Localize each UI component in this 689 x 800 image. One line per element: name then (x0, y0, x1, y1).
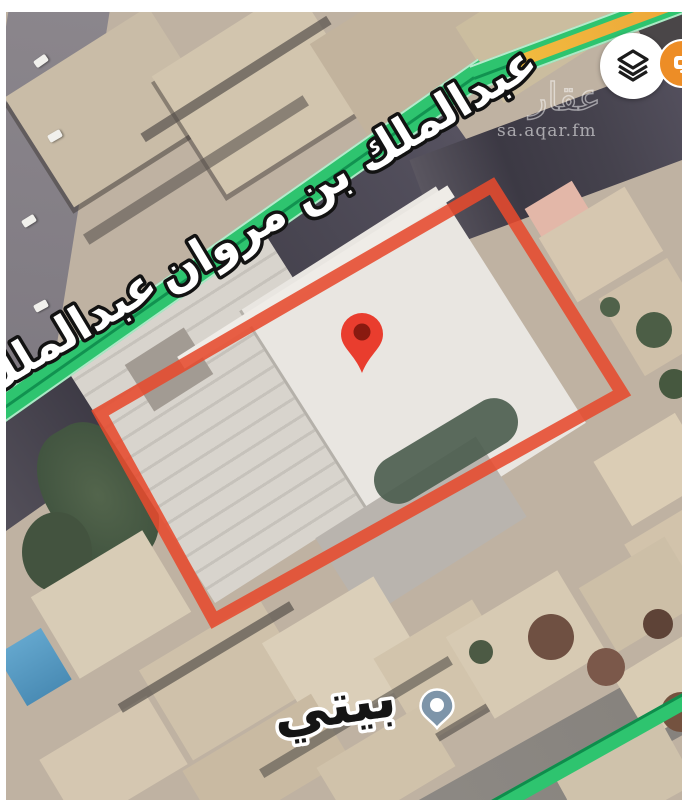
property-location-pin-icon[interactable] (341, 313, 383, 373)
watermark-url: sa.aqar.fm (497, 121, 597, 141)
home-label: بيتي (269, 665, 400, 747)
home-marker-icon[interactable] (421, 690, 454, 729)
layers-icon (614, 47, 652, 85)
aqar-logo-watermark: عقار (527, 75, 601, 119)
support-chat-icon (670, 51, 683, 77)
map-overlay: عبدالملك بن مروان عبدالملك بن مروان عقار… (6, 12, 682, 800)
satellite-map-canvas[interactable]: عبدالملك بن مروان عبدالملك بن مروان عقار… (6, 12, 682, 800)
map-layers-button[interactable] (600, 33, 666, 99)
